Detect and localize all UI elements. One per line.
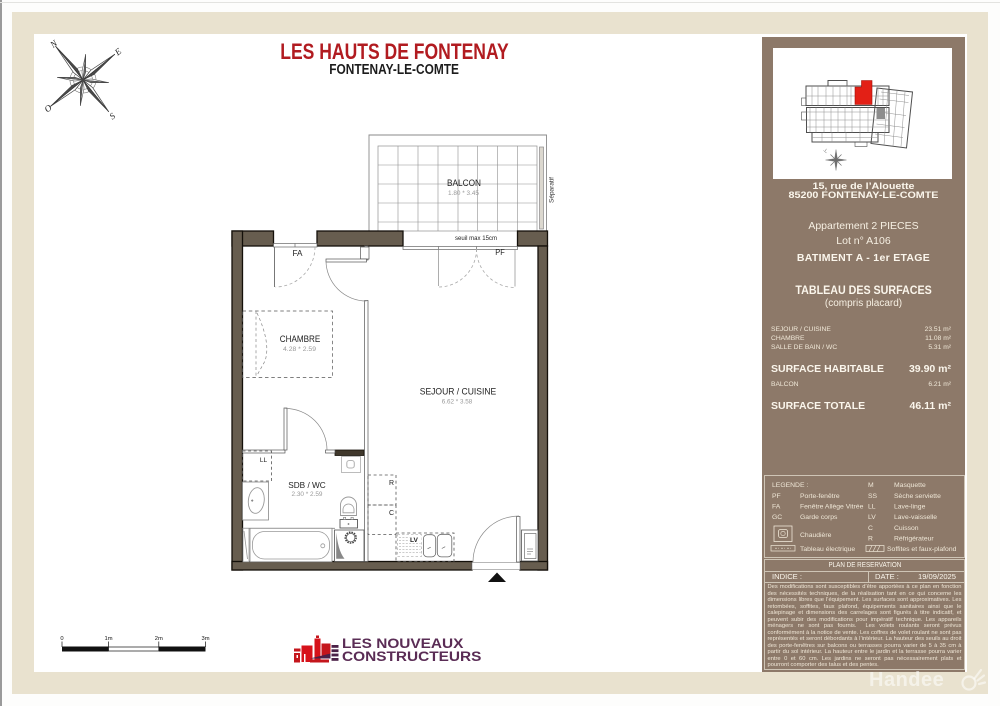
svg-text:FA: FA (293, 249, 304, 258)
svg-text:3m: 3m (201, 636, 209, 642)
svg-text:Réfrigérateur: Réfrigérateur (894, 536, 934, 543)
svg-text:R: R (868, 536, 873, 543)
svg-text:Séparatif: Séparatif (549, 177, 556, 203)
svg-text:Fenêtre Allège Vitrée: Fenêtre Allège Vitrée (800, 504, 864, 511)
svg-text:C: C (868, 525, 873, 532)
svg-text:Chaudière: Chaudière (800, 532, 832, 539)
svg-text:1m: 1m (104, 636, 112, 642)
svg-text:seuil max 15cm: seuil max 15cm (455, 235, 497, 242)
svg-text:FA: FA (772, 504, 781, 511)
svg-text:Lave-linge: Lave-linge (894, 504, 926, 511)
svg-text:PF: PF (772, 493, 781, 500)
svg-text:Garde corps: Garde corps (800, 514, 838, 521)
svg-text:Soffites et faux-plafond: Soffites et faux-plafond (887, 546, 957, 553)
svg-text:SDB / WC: SDB / WC (288, 480, 326, 490)
svg-text:SS: SS (868, 493, 878, 500)
svg-text:SEJOUR / CUISINE: SEJOUR / CUISINE (420, 387, 497, 398)
svg-text:6.62 * 3.58: 6.62 * 3.58 (442, 399, 473, 406)
svg-text:PF: PF (495, 248, 505, 257)
svg-text:C: C (389, 510, 394, 517)
svg-text:Tableau électrique: Tableau électrique (800, 546, 855, 553)
svg-text:LL: LL (868, 504, 876, 511)
svg-text:2m: 2m (155, 636, 163, 642)
svg-text:CHAMBRE: CHAMBRE (280, 334, 321, 345)
svg-text:GC: GC (772, 514, 782, 521)
svg-text:0: 0 (60, 636, 63, 642)
svg-text:R: R (389, 480, 394, 487)
svg-text:Porte-fenêtre: Porte-fenêtre (800, 493, 840, 500)
svg-text:Sèche serviette: Sèche serviette (894, 493, 941, 500)
svg-text:M: M (868, 482, 874, 489)
svg-text:LEGENDE :: LEGENDE : (772, 482, 808, 489)
svg-text:LV: LV (410, 537, 419, 544)
svg-text:LV: LV (868, 514, 876, 521)
svg-text:Masquette: Masquette (894, 482, 926, 489)
svg-text:2.30 * 2.59: 2.30 * 2.59 (292, 491, 323, 498)
svg-text:4.28 * 2.59: 4.28 * 2.59 (283, 346, 316, 353)
svg-text:Lave-vaisselle: Lave-vaisselle (894, 514, 937, 521)
svg-text:LL: LL (260, 457, 268, 464)
svg-text:1.80 * 3.45: 1.80 * 3.45 (448, 190, 479, 197)
svg-text:BALCON: BALCON (447, 178, 481, 188)
svg-text:Cuisson: Cuisson (894, 525, 919, 532)
